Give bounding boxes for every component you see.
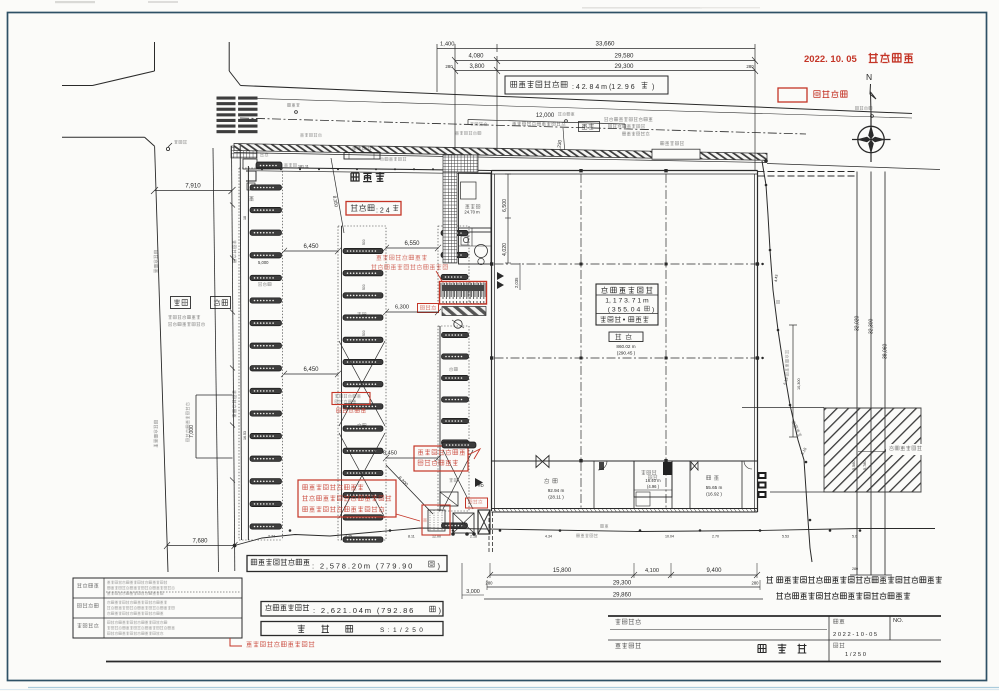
svg-text:5,780: 5,780: [863, 460, 867, 470]
svg-text:6,550: 6,550: [404, 241, 420, 247]
svg-text:29,300: 29,300: [613, 581, 632, 587]
svg-text:4.75: 4.75: [345, 535, 352, 539]
svg-text:8.11: 8.11: [408, 535, 415, 539]
svg-text:4,020: 4,020: [502, 243, 508, 256]
svg-text:55.65 m: 55.65 m: [706, 485, 723, 490]
svg-text:4,080: 4,080: [468, 54, 484, 60]
svg-text:280: 280: [445, 64, 453, 69]
svg-text:S : 1 / 2 5 0: S : 1 / 2 5 0: [380, 627, 424, 634]
svg-text:500: 500: [362, 239, 366, 245]
svg-text:5,000: 5,000: [258, 260, 269, 265]
svg-text:6,300: 6,300: [395, 305, 409, 311]
svg-text:1 / 2 5 0: 1 / 2 5 0: [845, 652, 866, 658]
svg-text:10.04: 10.04: [665, 535, 674, 539]
svg-text:12,000: 12,000: [536, 113, 555, 119]
svg-text:280: 280: [852, 567, 858, 571]
svg-text:3,800: 3,800: [469, 64, 485, 70]
svg-text:(290.45 ): (290.45 ): [617, 351, 636, 356]
svg-text:16.40 m: 16.40 m: [645, 478, 661, 483]
svg-text:280: 280: [752, 581, 760, 586]
svg-text:4.34: 4.34: [545, 535, 552, 539]
svg-text:15,800: 15,800: [553, 568, 572, 574]
svg-text:38,060: 38,060: [883, 343, 889, 359]
svg-text:18: 18: [243, 216, 247, 220]
svg-text:280: 280: [486, 581, 494, 586]
svg-text:6,450: 6,450: [383, 451, 397, 457]
svg-text:5,560: 5,560: [852, 460, 856, 470]
svg-text:32,020: 32,020: [855, 315, 861, 331]
svg-text:6,500: 6,500: [502, 199, 508, 212]
svg-text:29,860: 29,860: [613, 593, 632, 599]
svg-text:9,400: 9,400: [706, 568, 722, 574]
svg-text:NO.: NO.: [893, 618, 904, 624]
svg-text:2.74: 2.74: [268, 535, 275, 539]
svg-text:): ): [652, 84, 654, 91]
svg-text:29,300: 29,300: [615, 63, 634, 70]
svg-text:29,580: 29,580: [615, 53, 634, 60]
svg-text:: 4 2. 8 4 m (1 2. 9 6: : 4 2. 8 4 m (1 2. 9 6: [572, 84, 635, 91]
svg-text:2,035: 2,035: [514, 277, 519, 288]
svg-text:3,000: 3,000: [466, 589, 480, 595]
svg-text:4.43: 4.43: [774, 274, 779, 282]
svg-text:5.0: 5.0: [852, 535, 857, 539]
svg-text:16.53: 16.53: [243, 431, 247, 440]
svg-text:(28.11 ): (28.11 ): [548, 495, 564, 500]
svg-text:7,000: 7,000: [189, 425, 195, 438]
svg-text:92.94 m: 92.94 m: [548, 488, 565, 493]
svg-text:500: 500: [362, 284, 366, 290]
svg-text:32,300: 32,300: [869, 318, 875, 334]
svg-text:2.70: 2.70: [712, 535, 719, 539]
svg-text:860.02 m: 860.02 m: [616, 344, 635, 349]
svg-text:4,100: 4,100: [645, 568, 659, 574]
svg-text:#D: #D: [478, 483, 484, 488]
svg-text:( 3 5 5. 0 4: ( 3 5 5. 0 4: [608, 307, 641, 314]
svg-text:500: 500: [362, 330, 366, 336]
svg-text:: 2 4: : 2 4: [376, 208, 390, 215]
svg-text:6,450: 6,450: [303, 244, 319, 250]
svg-text:2 0 2 2 - 1 0 - 0 5: 2 0 2 2 - 1 0 - 0 5: [833, 632, 877, 638]
svg-text:5.53: 5.53: [782, 535, 789, 539]
svg-text:7,910: 7,910: [185, 183, 201, 190]
svg-text:): ): [652, 307, 654, 314]
svg-text:(4.96 ): (4.96 ): [647, 484, 660, 489]
svg-text:(16.92 ): (16.92 ): [706, 492, 722, 497]
svg-text:7,680: 7,680: [192, 539, 208, 545]
svg-text:N: N: [866, 72, 872, 82]
svg-text:10,300: 10,300: [797, 378, 801, 390]
svg-text:6,450: 6,450: [303, 367, 319, 373]
svg-text:: 2,578.20m (779.90: : 2,578.20m (779.90: [312, 562, 414, 571]
svg-text:1, 1 7 3. 7 1 m: 1, 1 7 3. 7 1 m: [605, 298, 649, 305]
svg-text:33,660: 33,660: [596, 41, 615, 48]
svg-text:24.70 m: 24.70 m: [464, 210, 480, 215]
svg-text:2022. 10. 05: 2022. 10. 05: [804, 54, 858, 65]
svg-text:: 2,621.04m (792.86: : 2,621.04m (792.86: [313, 606, 415, 615]
svg-text:1,400: 1,400: [440, 42, 455, 48]
